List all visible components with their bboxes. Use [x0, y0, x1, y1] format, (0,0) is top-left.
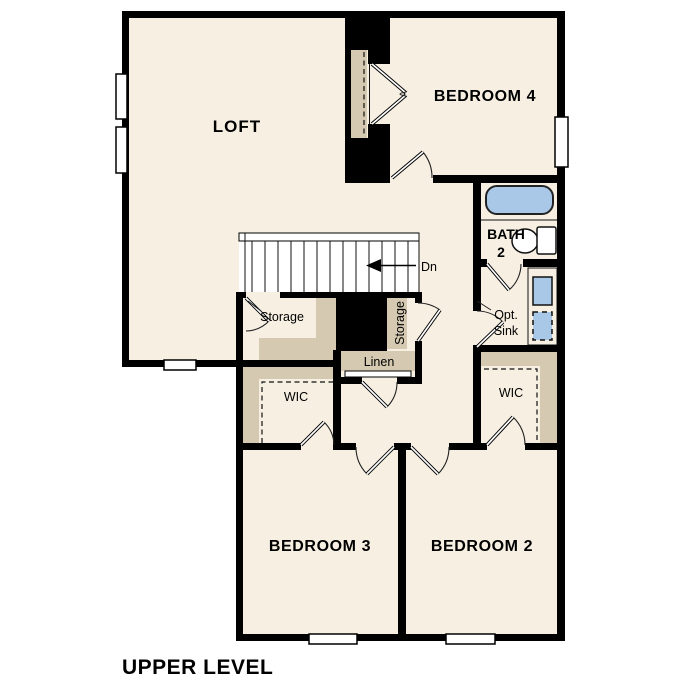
wall-segment: [236, 292, 243, 641]
wall-segment: [280, 292, 422, 298]
plan-caption: UPPER LEVEL: [122, 656, 273, 679]
wall-segment: [525, 443, 565, 450]
wall-segment: [122, 11, 129, 367]
wall-segment: [415, 292, 422, 303]
wall-segment: [473, 345, 557, 352]
storage-closet-label: Storage: [393, 301, 407, 345]
wall-segment: [368, 124, 390, 138]
opt-sink-label-line1: Opt.: [494, 308, 518, 322]
window: [164, 360, 196, 370]
bedroom3-label: BEDROOM 3: [269, 538, 371, 555]
stair-treads-area: [239, 241, 419, 292]
wic-left-label: WIC: [284, 390, 308, 404]
staircase: [239, 233, 419, 292]
wall-segment: [473, 175, 481, 311]
window: [309, 634, 357, 644]
window: [446, 634, 495, 644]
bathtub: [486, 186, 553, 214]
wic-left-interior: [259, 379, 333, 443]
toilet-tank: [537, 227, 556, 254]
wall-segment: [523, 259, 557, 267]
opt-sink-label-line2: Sink: [494, 324, 519, 338]
stair-down-label: Dn: [421, 260, 437, 274]
window: [555, 117, 568, 167]
stair-rail-band: [239, 233, 419, 241]
wall-segment: [122, 11, 565, 18]
wall-segment: [236, 292, 246, 298]
linen-label: Linen: [364, 355, 395, 369]
window: [116, 74, 127, 119]
bedroom4-label: BEDROOM 4: [434, 88, 536, 105]
wall-segment: [397, 377, 422, 384]
loft-label: LOFT: [213, 117, 261, 136]
wall-segment: [236, 360, 341, 367]
optional-sink: [533, 312, 552, 340]
wall-segment: [449, 443, 487, 450]
wic-right-label: WIC: [499, 386, 523, 400]
storage-room-label: Storage: [260, 310, 304, 324]
bath2-label-line2: 2: [497, 244, 505, 260]
stairwell-void-wall: [336, 298, 387, 351]
sink: [533, 277, 552, 305]
storage-counter-horizontal: [259, 338, 336, 360]
wall-segment: [481, 259, 487, 267]
linen-shelf-edge: [345, 371, 411, 377]
bath2-label-line1: BATH: [487, 226, 525, 242]
floor-plan: LOFT BEDROOM 4 BATH 2 Dn Storage Storage…: [0, 0, 687, 687]
wall-segment: [433, 175, 557, 183]
bedroom2-label: BEDROOM 2: [431, 538, 533, 555]
wall-segment: [341, 377, 362, 384]
wall-segment: [335, 443, 356, 450]
wall-segment: [398, 443, 406, 641]
wic-right-interior: [481, 366, 540, 443]
wall-segment: [473, 352, 481, 443]
wall-segment: [368, 50, 390, 64]
window: [116, 127, 127, 173]
wall-segment: [236, 443, 301, 450]
wall-segment: [557, 11, 565, 641]
